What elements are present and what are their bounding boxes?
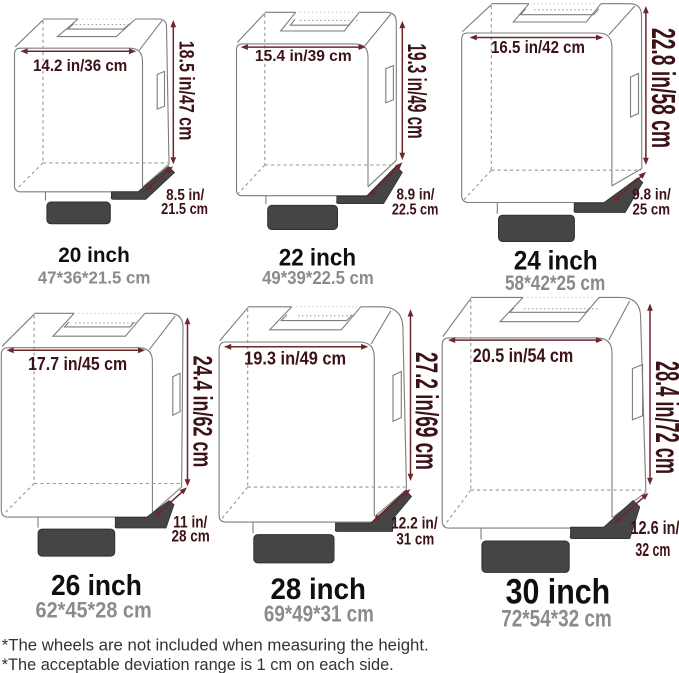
svg-text:32 cm: 32 cm <box>635 539 670 560</box>
svg-text:58*42*25 cm: 58*42*25 cm <box>505 272 605 295</box>
svg-text:47*36*21.5 cm: 47*36*21.5 cm <box>38 268 151 288</box>
svg-text:16.5 in/42 cm: 16.5 in/42 cm <box>491 37 585 57</box>
svg-text:62*45*28 cm: 62*45*28 cm <box>36 597 152 622</box>
svg-text:17.7 in/45 cm: 17.7 in/45 cm <box>28 353 127 374</box>
svg-text:12.6 in/: 12.6 in/ <box>630 517 679 538</box>
svg-text:25 cm: 25 cm <box>633 201 671 218</box>
svg-text:24 inch: 24 inch <box>514 246 598 276</box>
svg-text:19.3 in/49 cm: 19.3 in/49 cm <box>402 44 432 139</box>
svg-text:*The wheels are not included w: *The wheels are not included when measur… <box>2 636 429 655</box>
svg-text:28.4 in/72 cm: 28.4 in/72 cm <box>649 361 679 474</box>
svg-text:20 inch: 20 inch <box>58 242 130 267</box>
svg-text:28 cm: 28 cm <box>171 527 209 546</box>
svg-text:20.5 in/54 cm: 20.5 in/54 cm <box>473 345 573 367</box>
svg-text:72*54*32 cm: 72*54*32 cm <box>501 606 612 632</box>
svg-text:69*49*31 cm: 69*49*31 cm <box>264 601 374 627</box>
svg-text:27.2 in/69 cm: 27.2 in/69 cm <box>409 352 445 470</box>
svg-text:18.5 in/47 cm: 18.5 in/47 cm <box>175 41 198 141</box>
svg-text:24.4 in/62 cm: 24.4 in/62 cm <box>187 356 217 468</box>
svg-text:14.2 in/36 cm: 14.2 in/36 cm <box>33 56 127 75</box>
svg-text:49*39*22.5 cm: 49*39*22.5 cm <box>262 267 374 288</box>
svg-text:15.4 in/39 cm: 15.4 in/39 cm <box>255 48 352 65</box>
svg-text:21.5 cm: 21.5 cm <box>161 201 208 218</box>
svg-text:31 cm: 31 cm <box>396 529 434 548</box>
svg-text:*The acceptable deviation rang: *The acceptable deviation range is 1 cm … <box>2 655 394 673</box>
svg-text:22.8 in/58 cm: 22.8 in/58 cm <box>645 28 679 148</box>
svg-text:19.3 in/49 cm: 19.3 in/49 cm <box>244 348 346 369</box>
svg-text:22.5 cm: 22.5 cm <box>392 202 439 219</box>
